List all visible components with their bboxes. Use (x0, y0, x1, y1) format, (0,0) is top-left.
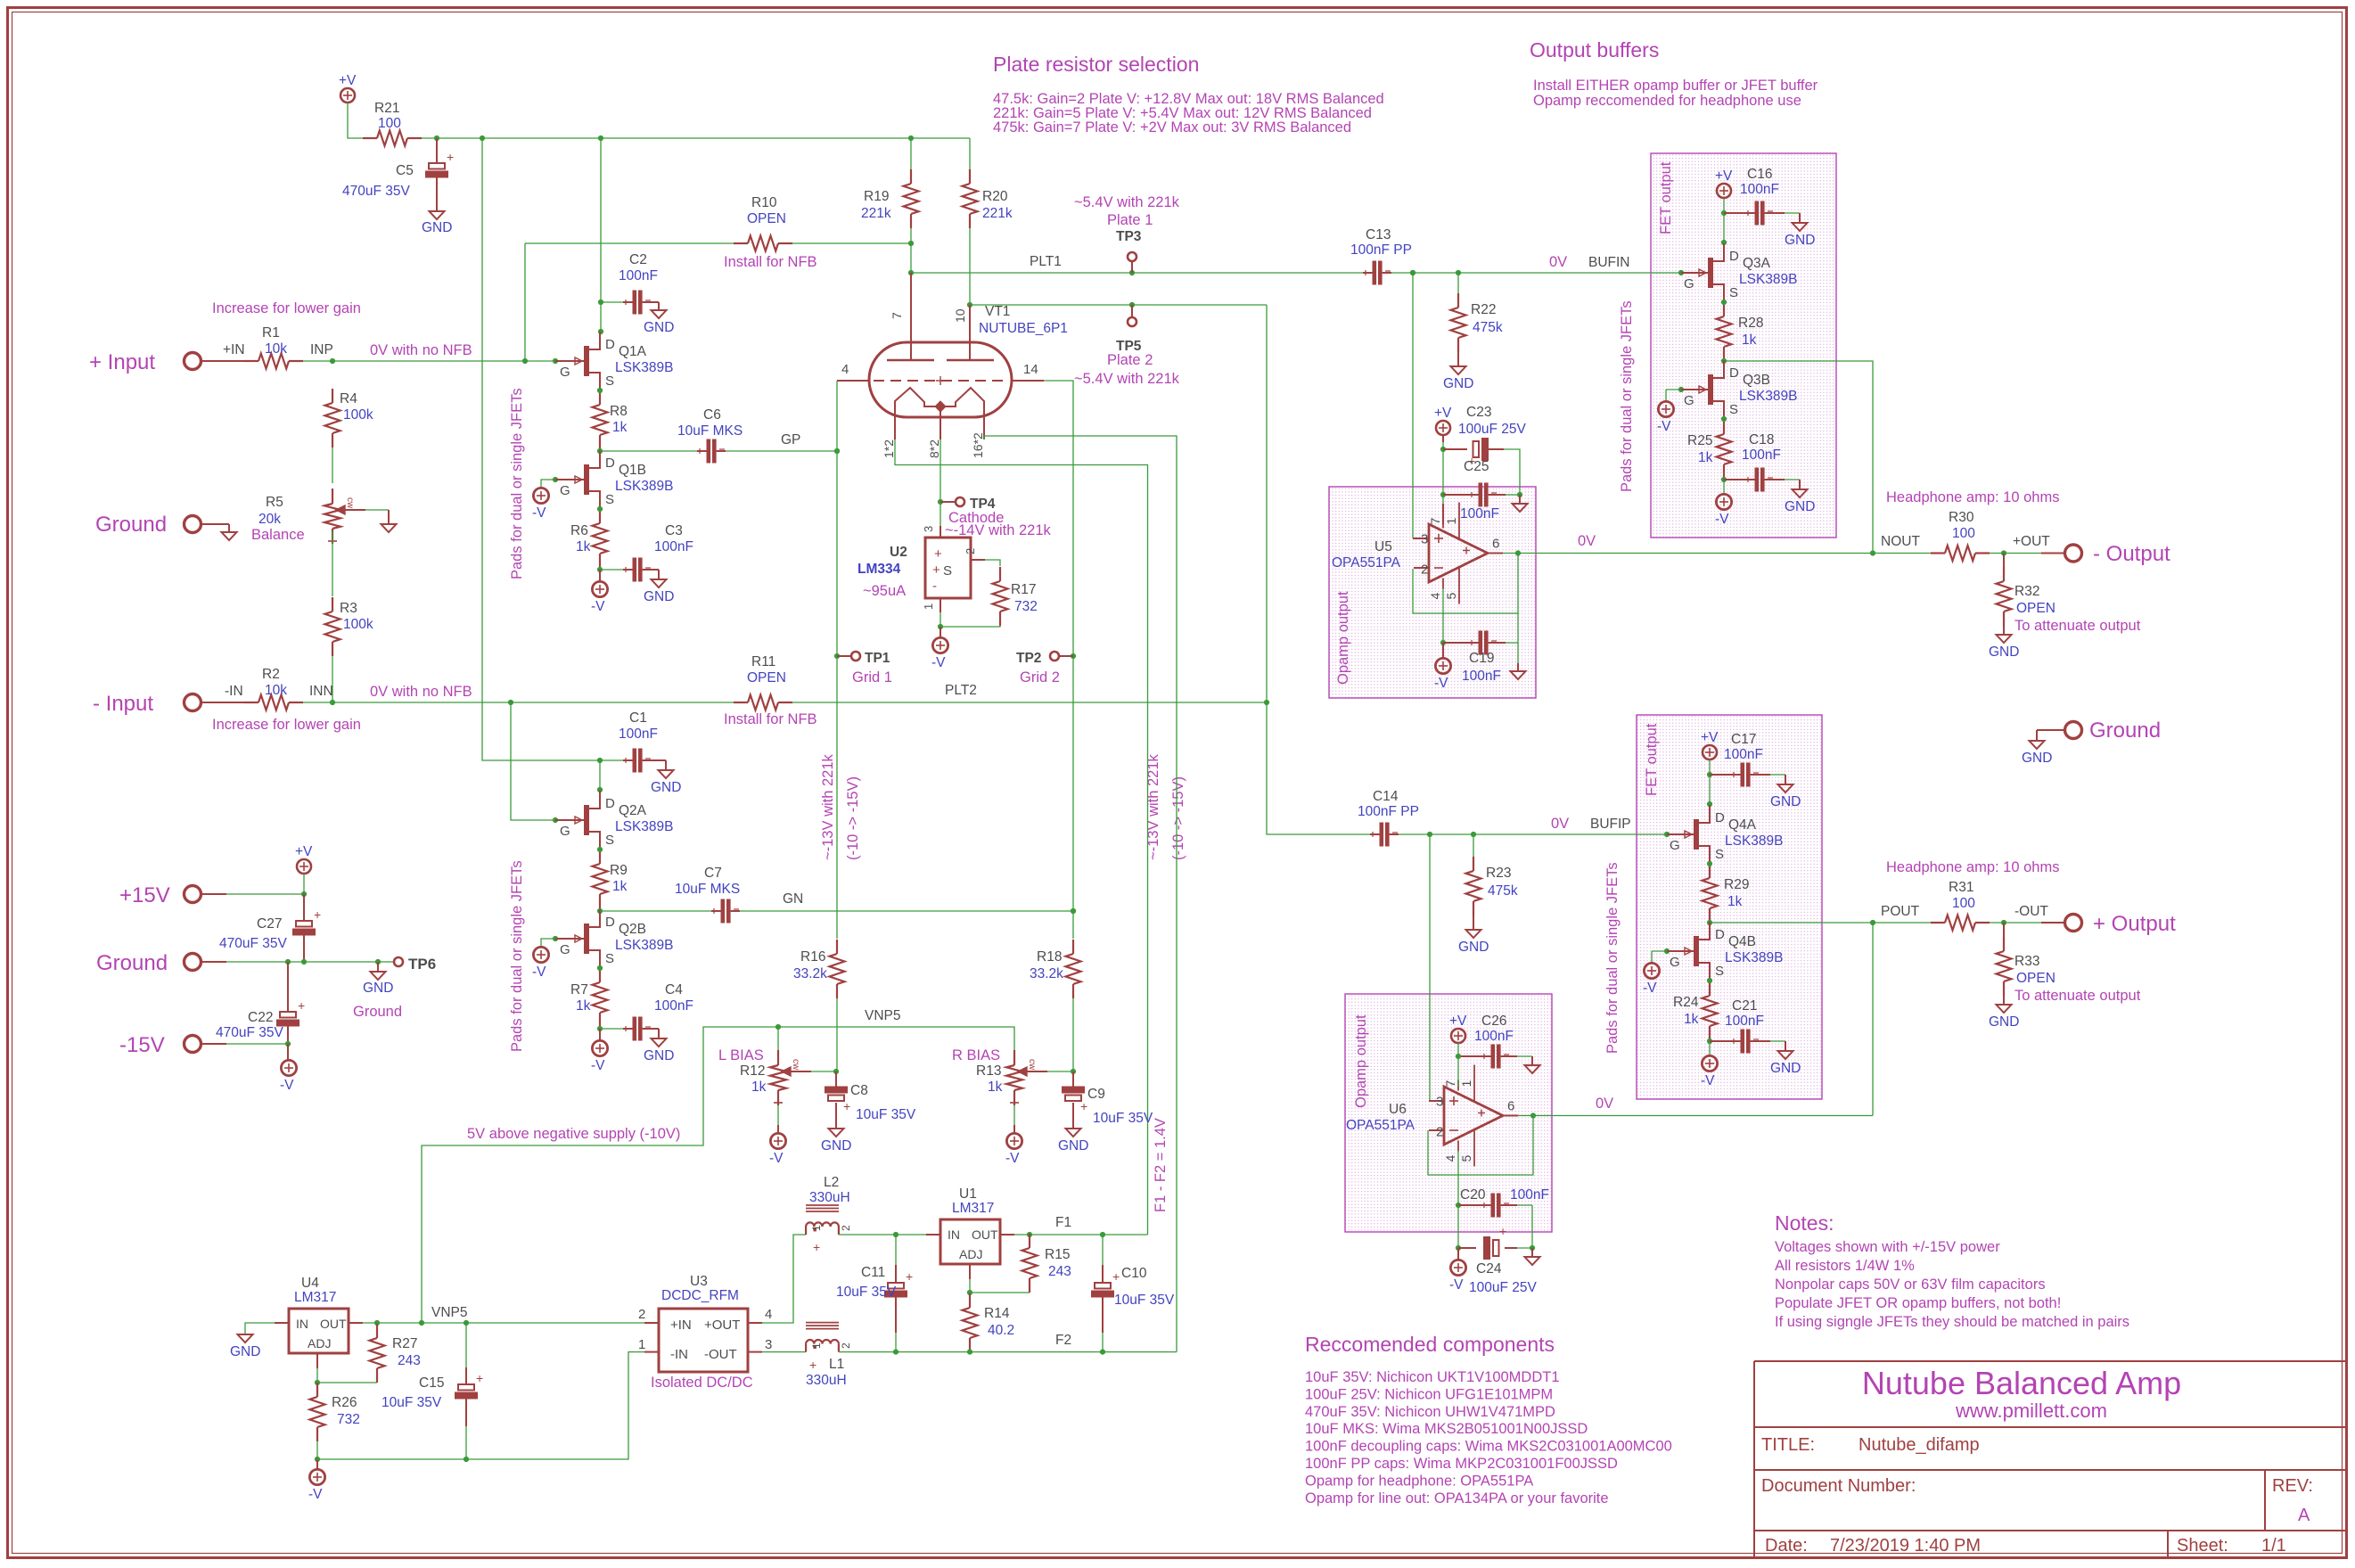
svg-text:1k: 1k (988, 1080, 1003, 1095)
svg-text:LSK389B: LSK389B (1739, 389, 1798, 404)
svg-text:ADJ: ADJ (959, 1247, 982, 1261)
svg-text:100uF 25V: 100uF 25V (1458, 422, 1526, 437)
svg-text:475k: Gain=7 Plate V: +2V Ma: 475k: Gain=7 Plate V: +2V Max out: 3V RM… (993, 119, 1351, 135)
svg-text:Increase for lower gain: Increase for lower gain (212, 717, 361, 733)
svg-text:C15: C15 (419, 1375, 444, 1391)
svg-text:R11: R11 (751, 654, 775, 669)
svg-text:10uF MKS: Wima MKS2B051001N00J: 10uF MKS: Wima MKS2B051001N00JSSD (1305, 1421, 1588, 1437)
svg-text:-OUT: -OUT (704, 1347, 737, 1362)
svg-text:G: G (1670, 838, 1680, 853)
svg-text:NUTUBE_6P1: NUTUBE_6P1 (979, 321, 1068, 336)
svg-text:100: 100 (1952, 526, 1975, 541)
svg-text:-V: -V (532, 965, 546, 980)
svg-text:+: + (447, 150, 454, 164)
svg-text:NOUT: NOUT (1881, 534, 1920, 549)
svg-text:R16: R16 (800, 949, 825, 965)
svg-text:Ground: Ground (95, 513, 167, 537)
svg-text:R29: R29 (1724, 877, 1749, 892)
svg-text:470uF 35V: 470uF 35V (219, 936, 287, 951)
svg-text:+: + (932, 562, 940, 578)
svg-text:All resistors 1/4W 1%: All resistors 1/4W 1% (1775, 1258, 1915, 1274)
svg-text:S: S (605, 374, 614, 389)
svg-text:3: 3 (922, 526, 935, 532)
svg-text:R20: R20 (982, 189, 1008, 204)
svg-text:100: 100 (378, 116, 401, 131)
svg-text:Isolated DC/DC: Isolated DC/DC (651, 1375, 753, 1391)
svg-text:~95uA: ~95uA (863, 583, 906, 599)
svg-text:+V: +V (339, 73, 357, 88)
svg-text:Ground: Ground (96, 951, 168, 975)
svg-text:243: 243 (1048, 1264, 1071, 1279)
svg-text:LSK389B: LSK389B (615, 938, 674, 953)
svg-text:LSK389B: LSK389B (615, 479, 674, 494)
svg-text:Q1B: Q1B (619, 463, 646, 478)
svg-text:470uF 35V: Nichicon UHW1V471MP: 470uF 35V: Nichicon UHW1V471MPD (1305, 1404, 1555, 1420)
svg-text:R18: R18 (1037, 949, 1062, 965)
svg-text:4: 4 (1428, 593, 1442, 600)
svg-text:1/1: 1/1 (2261, 1536, 2286, 1556)
svg-text:2: 2 (1436, 1125, 1443, 1140)
svg-text:Pads for dual or single JFETs: Pads for dual or single JFETs (1604, 862, 1621, 1054)
svg-text:GND: GND (644, 1048, 674, 1063)
svg-text:C10: C10 (1121, 1266, 1147, 1281)
svg-text:Ground: Ground (353, 1004, 402, 1020)
svg-text:R26: R26 (332, 1395, 357, 1410)
svg-text:C17: C17 (1731, 732, 1756, 747)
svg-text:VNP5: VNP5 (431, 1305, 468, 1320)
svg-text:LM317: LM317 (294, 1290, 336, 1305)
svg-text:Nutube_difamp: Nutube_difamp (1859, 1435, 1980, 1455)
svg-text:10uF 35V: 10uF 35V (856, 1107, 916, 1122)
svg-text:+V: +V (1715, 168, 1733, 184)
svg-text:G: G (1684, 276, 1694, 291)
svg-text:0V with no NFB: 0V with no NFB (370, 684, 472, 700)
svg-text:(-10 -> -15V): (-10 -> -15V) (1170, 776, 1186, 860)
svg-text:U5: U5 (1374, 539, 1392, 554)
svg-text:475k: 475k (1488, 883, 1518, 899)
svg-text:-V: -V (280, 1078, 294, 1093)
svg-text:GND: GND (1770, 1061, 1801, 1076)
svg-text:33.2k: 33.2k (1030, 966, 1063, 981)
svg-text:10uF 35V: 10uF 35V (382, 1395, 442, 1410)
svg-text:Opamp reccomended for headphon: Opamp reccomended for headphone use (1533, 93, 1801, 109)
svg-text:100nF: 100nF (654, 539, 693, 554)
svg-text:S: S (605, 492, 614, 507)
svg-text:Opamp for headphone: OPA551PA: Opamp for headphone: OPA551PA (1305, 1473, 1533, 1489)
svg-text:L1: L1 (829, 1357, 844, 1372)
svg-text:R1: R1 (262, 325, 280, 341)
svg-text:Populate JFET OR opamp buffers: Populate JFET OR opamp buffers, not both… (1775, 1295, 2061, 1311)
svg-text:+15V: +15V (119, 883, 170, 907)
svg-text:+V: +V (295, 844, 313, 859)
svg-text:R24: R24 (1673, 995, 1699, 1010)
svg-text:+: + (906, 1269, 913, 1284)
svg-text:100k: 100k (343, 617, 373, 632)
svg-text:Notes:: Notes: (1775, 1211, 1834, 1235)
svg-text:D: D (605, 915, 615, 930)
svg-text:R21: R21 (374, 101, 399, 116)
svg-text:Plate resistor selection: Plate resistor selection (993, 53, 1199, 76)
svg-text:0V: 0V (1551, 816, 1569, 832)
svg-text:R27: R27 (392, 1336, 417, 1351)
svg-text:R25: R25 (1687, 433, 1712, 448)
svg-text:4: 4 (1443, 1155, 1457, 1162)
svg-text:+IN: +IN (223, 342, 245, 357)
svg-text:TP6: TP6 (408, 956, 436, 973)
svg-text:R2: R2 (262, 667, 280, 682)
svg-text:S: S (1729, 285, 1738, 300)
svg-text:VT1: VT1 (985, 304, 1010, 319)
svg-text:1k: 1k (612, 879, 628, 894)
svg-text:REV:: REV: (2272, 1476, 2313, 1496)
svg-text:1: 1 (638, 1337, 645, 1352)
svg-text:U3: U3 (690, 1274, 708, 1289)
svg-text:Plate 2: Plate 2 (1107, 352, 1153, 368)
svg-text:221k: 221k (982, 206, 1013, 221)
svg-text:C4: C4 (665, 982, 683, 997)
svg-text:1k: 1k (576, 539, 591, 554)
svg-text:100nF: 100nF (1510, 1187, 1549, 1203)
svg-text:Q3A: Q3A (1743, 256, 1771, 271)
svg-text:470uF 35V: 470uF 35V (216, 1025, 283, 1040)
svg-text:To attenuate output: To attenuate output (2014, 618, 2141, 634)
svg-text:100nF PP: 100nF PP (1358, 804, 1419, 819)
svg-text:LM334: LM334 (857, 562, 901, 577)
svg-text:G: G (560, 824, 570, 839)
svg-text:5V above negative supply (-10V: 5V above negative supply (-10V) (467, 1126, 680, 1142)
svg-text:+OUT: +OUT (2013, 534, 2050, 549)
svg-text:221k: 221k (861, 206, 891, 221)
svg-text:16*2: 16*2 (971, 432, 985, 458)
svg-text:+: + (809, 1358, 816, 1372)
svg-text:+: + (1499, 1224, 1506, 1238)
svg-text:6: 6 (1507, 1099, 1514, 1114)
svg-text:OUT: OUT (320, 1317, 347, 1331)
svg-text:100nF: 100nF (1742, 447, 1781, 463)
svg-text:C3: C3 (665, 523, 683, 538)
svg-text:100uF 25V: Nichicon UFG1E101MP: 100uF 25V: Nichicon UFG1E101MPM (1305, 1386, 1553, 1402)
svg-text:LSK389B: LSK389B (1739, 272, 1798, 287)
svg-text:Sheet:: Sheet: (2177, 1536, 2228, 1556)
svg-text:U6: U6 (1389, 1102, 1407, 1117)
svg-text:Opamp for line out: OPA134PA o: Opamp for line out: OPA134PA or your fav… (1305, 1490, 1609, 1506)
svg-text:10uF 35V: Nichicon UKT1V100MDD: 10uF 35V: Nichicon UKT1V100MDDT1 (1305, 1369, 1560, 1385)
svg-text:-V: -V (931, 655, 946, 670)
svg-text:R23: R23 (1486, 866, 1511, 881)
svg-text:LSK389B: LSK389B (615, 819, 674, 834)
svg-text:GND: GND (1058, 1138, 1088, 1153)
svg-text:7/23/2019 1:40 PM: 7/23/2019 1:40 PM (1830, 1536, 1981, 1556)
svg-text:0V with no NFB: 0V with no NFB (370, 342, 472, 358)
svg-text:F1 - F2 = 1.4V: F1 - F2 = 1.4V (1153, 1118, 1169, 1212)
svg-text:OPEN: OPEN (747, 211, 786, 226)
svg-text:GND: GND (422, 220, 452, 235)
svg-text:GND: GND (2022, 751, 2052, 766)
svg-text:-V: -V (769, 1151, 784, 1166)
svg-text:R5: R5 (266, 495, 283, 510)
svg-text:2: 2 (1421, 562, 1428, 578)
svg-text:14: 14 (1023, 362, 1038, 377)
svg-text:C20: C20 (1460, 1187, 1486, 1203)
svg-text:+OUT: +OUT (704, 1318, 740, 1333)
svg-text:4: 4 (841, 362, 849, 377)
svg-text:-V: -V (1449, 1277, 1464, 1293)
svg-text:243: 243 (398, 1353, 421, 1368)
svg-text:1: 1 (1444, 518, 1458, 525)
svg-text:R4: R4 (340, 391, 357, 406)
svg-text:Pads for dual or single JFETs: Pads for dual or single JFETs (509, 860, 525, 1052)
svg-text:TP1: TP1 (865, 651, 890, 666)
svg-text:-V: -V (308, 1487, 323, 1502)
svg-text:S: S (605, 833, 614, 848)
svg-text:10k: 10k (265, 341, 287, 357)
svg-text:GND: GND (821, 1138, 851, 1153)
svg-text:3: 3 (765, 1337, 772, 1352)
svg-text:A: A (2298, 1506, 2310, 1525)
svg-text:2: 2 (840, 1225, 852, 1231)
svg-text:10uF 35V: 10uF 35V (1093, 1111, 1153, 1126)
svg-text:IN: IN (948, 1227, 960, 1242)
svg-text:FET output: FET output (1644, 723, 1660, 796)
svg-text:- Output: - Output (2093, 542, 2170, 566)
svg-text:VNP5: VNP5 (865, 1008, 901, 1023)
svg-text:10uF MKS: 10uF MKS (677, 423, 743, 439)
svg-text:-V: -V (1643, 981, 1657, 996)
svg-text:R3: R3 (340, 601, 357, 616)
svg-text:+: + (314, 907, 321, 922)
svg-text:C13: C13 (1366, 227, 1391, 242)
svg-text:Install EITHER opamp buffer or: Install EITHER opamp buffer or JFET buff… (1533, 78, 1818, 94)
svg-text:D: D (605, 796, 615, 811)
svg-text:L BIAS: L BIAS (718, 1047, 764, 1063)
svg-text:Increase for lower gain: Increase for lower gain (212, 300, 361, 316)
svg-text:S: S (605, 951, 614, 966)
svg-text:-V: -V (1715, 512, 1729, 527)
svg-text:Ground: Ground (2089, 718, 2161, 743)
svg-text:C18: C18 (1749, 432, 1774, 447)
svg-text:100nF decoupling caps: Wima MK: 100nF decoupling caps: Wima MKS2C031001A… (1305, 1439, 1672, 1455)
svg-text:S: S (1715, 847, 1724, 862)
svg-text:BUFIP: BUFIP (1590, 817, 1631, 832)
svg-text:C14: C14 (1373, 789, 1399, 804)
svg-text:Pads for dual or single JFETs: Pads for dual or single JFETs (509, 388, 525, 579)
svg-text:OPEN: OPEN (2016, 601, 2055, 616)
svg-text:7: 7 (1443, 1080, 1457, 1088)
svg-text:10uF MKS: 10uF MKS (675, 882, 740, 897)
svg-text:330uH: 330uH (806, 1373, 847, 1388)
svg-text:R32: R32 (2014, 584, 2039, 599)
svg-text:~-13V with 221k: ~-13V with 221k (820, 753, 836, 860)
svg-text:470uF 35V: 470uF 35V (342, 184, 410, 199)
svg-text:GND: GND (644, 320, 674, 335)
svg-text:+IN: +IN (670, 1318, 692, 1333)
svg-text:Q4A: Q4A (1728, 817, 1757, 833)
svg-text:R13: R13 (976, 1063, 1001, 1079)
svg-text:Document Number:: Document Number: (1761, 1476, 1916, 1496)
svg-text:-V: -V (532, 505, 546, 521)
svg-text:Grid 2: Grid 2 (1020, 669, 1060, 685)
svg-text:OPA551PA: OPA551PA (1332, 555, 1401, 571)
svg-text:LSK389B: LSK389B (1725, 950, 1784, 965)
svg-text:10: 10 (953, 308, 967, 323)
svg-text:100nF: 100nF (619, 268, 658, 283)
svg-text:LM317: LM317 (952, 1201, 994, 1216)
svg-text:1*2: 1*2 (882, 439, 896, 458)
svg-text:ADJ: ADJ (308, 1336, 331, 1350)
svg-text:GND: GND (1785, 233, 1815, 248)
svg-text:D: D (1729, 365, 1739, 381)
svg-text:C26: C26 (1481, 1014, 1506, 1029)
svg-text:D: D (1715, 927, 1725, 942)
svg-text:G: G (560, 483, 570, 498)
svg-text:+V: +V (1701, 730, 1719, 745)
svg-text:C5: C5 (396, 163, 414, 178)
svg-text:-IN: -IN (670, 1347, 688, 1362)
svg-text:TP2: TP2 (1016, 651, 1041, 666)
svg-text:R22: R22 (1471, 302, 1496, 317)
svg-text:GND: GND (1785, 499, 1815, 514)
svg-text:-V: -V (591, 599, 605, 614)
svg-text:-IN: -IN (225, 684, 243, 699)
svg-text:-OUT: -OUT (2014, 904, 2048, 919)
svg-text:1k: 1k (751, 1080, 767, 1095)
svg-text:+: + (813, 1240, 820, 1254)
svg-text:D: D (605, 456, 615, 471)
svg-text:IN: IN (296, 1317, 308, 1331)
svg-text:D: D (605, 337, 615, 352)
svg-text:PLT2: PLT2 (945, 683, 977, 698)
svg-text:-V: -V (1434, 676, 1448, 691)
svg-text:10uF 35V: 10uF 35V (836, 1285, 897, 1300)
svg-text:Q3B: Q3B (1743, 373, 1770, 388)
svg-text:www.pmillett.com: www.pmillett.com (1955, 1400, 2107, 1422)
svg-text:+: + (1080, 1099, 1087, 1113)
svg-text:F2: F2 (1055, 1333, 1071, 1348)
svg-text:R10: R10 (751, 195, 777, 210)
svg-text:100nF: 100nF (1462, 669, 1501, 684)
svg-text:(-10 -> -15V): (-10 -> -15V) (845, 776, 861, 860)
svg-text:1: 1 (922, 603, 935, 610)
svg-text:GP: GP (781, 432, 800, 447)
svg-text:5: 5 (1444, 593, 1458, 600)
svg-text:100uF 25V: 100uF 25V (1469, 1280, 1537, 1295)
svg-text:GND: GND (1989, 1014, 2019, 1030)
svg-text:40.2: 40.2 (988, 1323, 1014, 1338)
svg-text:D: D (1729, 249, 1739, 264)
svg-text:+ Output: + Output (2093, 912, 2176, 936)
svg-text:GND: GND (651, 780, 681, 795)
svg-text:-V: -V (1701, 1073, 1715, 1088)
svg-text:LSK389B: LSK389B (1725, 833, 1784, 849)
svg-text:R31: R31 (1949, 880, 1973, 895)
svg-text:Grid 1: Grid 1 (852, 669, 892, 685)
svg-text:R33: R33 (2014, 954, 2039, 969)
svg-text:C9: C9 (1087, 1087, 1105, 1102)
svg-text:5: 5 (1459, 1155, 1473, 1162)
svg-text:475k: 475k (1473, 320, 1503, 335)
svg-text:R30: R30 (1949, 510, 1974, 525)
svg-text:C27: C27 (257, 916, 282, 932)
svg-text:C6: C6 (703, 407, 721, 423)
svg-text:GND: GND (644, 589, 674, 604)
svg-text:+V: +V (1449, 1014, 1467, 1029)
svg-text:Voltages shown with +/-15V pow: Voltages shown with +/-15V power (1775, 1239, 2000, 1255)
svg-text:C2: C2 (629, 252, 647, 267)
svg-text:R17: R17 (1011, 582, 1036, 597)
svg-text:D: D (1715, 810, 1725, 825)
svg-text:R12: R12 (740, 1063, 765, 1079)
svg-text:-V: -V (1657, 419, 1671, 434)
svg-text:Headphone amp: 10 ohms: Headphone amp: 10 ohms (1886, 489, 2059, 505)
svg-text:+: + (476, 1371, 483, 1385)
svg-text:G: G (560, 365, 570, 380)
svg-text:100k: 100k (343, 407, 373, 423)
svg-text:R19: R19 (864, 189, 889, 204)
svg-text:GND: GND (1770, 794, 1801, 809)
svg-text:R14: R14 (984, 1306, 1010, 1321)
svg-text:POUT: POUT (1881, 904, 1920, 919)
svg-text:U2: U2 (890, 545, 907, 560)
svg-text:GN: GN (783, 891, 803, 907)
svg-text:OUT: OUT (972, 1227, 998, 1242)
svg-text:+ Input: + Input (89, 350, 155, 374)
svg-text:7: 7 (890, 312, 904, 319)
svg-text:Headphone amp: 10 ohms: Headphone amp: 10 ohms (1886, 859, 2059, 875)
svg-text:+V: +V (1434, 406, 1452, 421)
svg-text:OPEN: OPEN (2016, 971, 2055, 986)
svg-text:4: 4 (765, 1307, 772, 1322)
svg-text:-V: -V (1005, 1151, 1020, 1166)
svg-text:1k: 1k (612, 420, 628, 435)
svg-text:Install for NFB: Install for NFB (724, 254, 817, 270)
svg-text:INP: INP (310, 342, 333, 357)
svg-text:R15: R15 (1045, 1247, 1070, 1262)
svg-text:330uH: 330uH (809, 1190, 850, 1205)
svg-text:C8: C8 (850, 1083, 868, 1098)
svg-text:7: 7 (1428, 518, 1442, 525)
svg-text:2: 2 (840, 1342, 852, 1349)
svg-text:Install for NFB: Install for NFB (724, 711, 817, 727)
svg-text:cw: cw (345, 497, 355, 509)
svg-text:100nF: 100nF (1740, 182, 1779, 197)
svg-text:Nonpolar caps 50V or 63V film: Nonpolar caps 50V or 63V film capacitors (1775, 1277, 2046, 1293)
svg-text:Opamp output: Opamp output (1353, 1014, 1369, 1108)
svg-text:100nF: 100nF (1725, 1014, 1764, 1029)
svg-text:F1: F1 (1055, 1215, 1071, 1230)
svg-text:100: 100 (1952, 896, 1975, 911)
svg-text:100nF: 100nF (654, 998, 693, 1014)
svg-text:LSK389B: LSK389B (615, 360, 674, 375)
svg-text:To attenuate output: To attenuate output (2014, 988, 2141, 1004)
svg-text:100nF: 100nF (1724, 747, 1763, 762)
svg-text:20k: 20k (258, 512, 281, 527)
svg-text:PLT1: PLT1 (1030, 254, 1062, 269)
svg-text:BUFIN: BUFIN (1588, 255, 1630, 270)
svg-text:Output buffers: Output buffers (1530, 38, 1659, 62)
svg-text:1k: 1k (1742, 332, 1757, 348)
svg-text:100nF PP: 100nF PP (1350, 242, 1412, 258)
svg-text:Balance: Balance (251, 527, 305, 543)
svg-text:-15V: -15V (119, 1033, 165, 1057)
svg-text:+: + (1112, 1269, 1120, 1284)
svg-text:6: 6 (1492, 537, 1499, 552)
svg-text:TP3: TP3 (1116, 229, 1142, 244)
svg-text:+: + (843, 1099, 850, 1113)
svg-text:Opamp output: Opamp output (1335, 591, 1351, 685)
svg-text:R28: R28 (1738, 316, 1763, 331)
svg-text:1: 1 (810, 1225, 823, 1231)
svg-text:OPEN: OPEN (747, 670, 786, 685)
